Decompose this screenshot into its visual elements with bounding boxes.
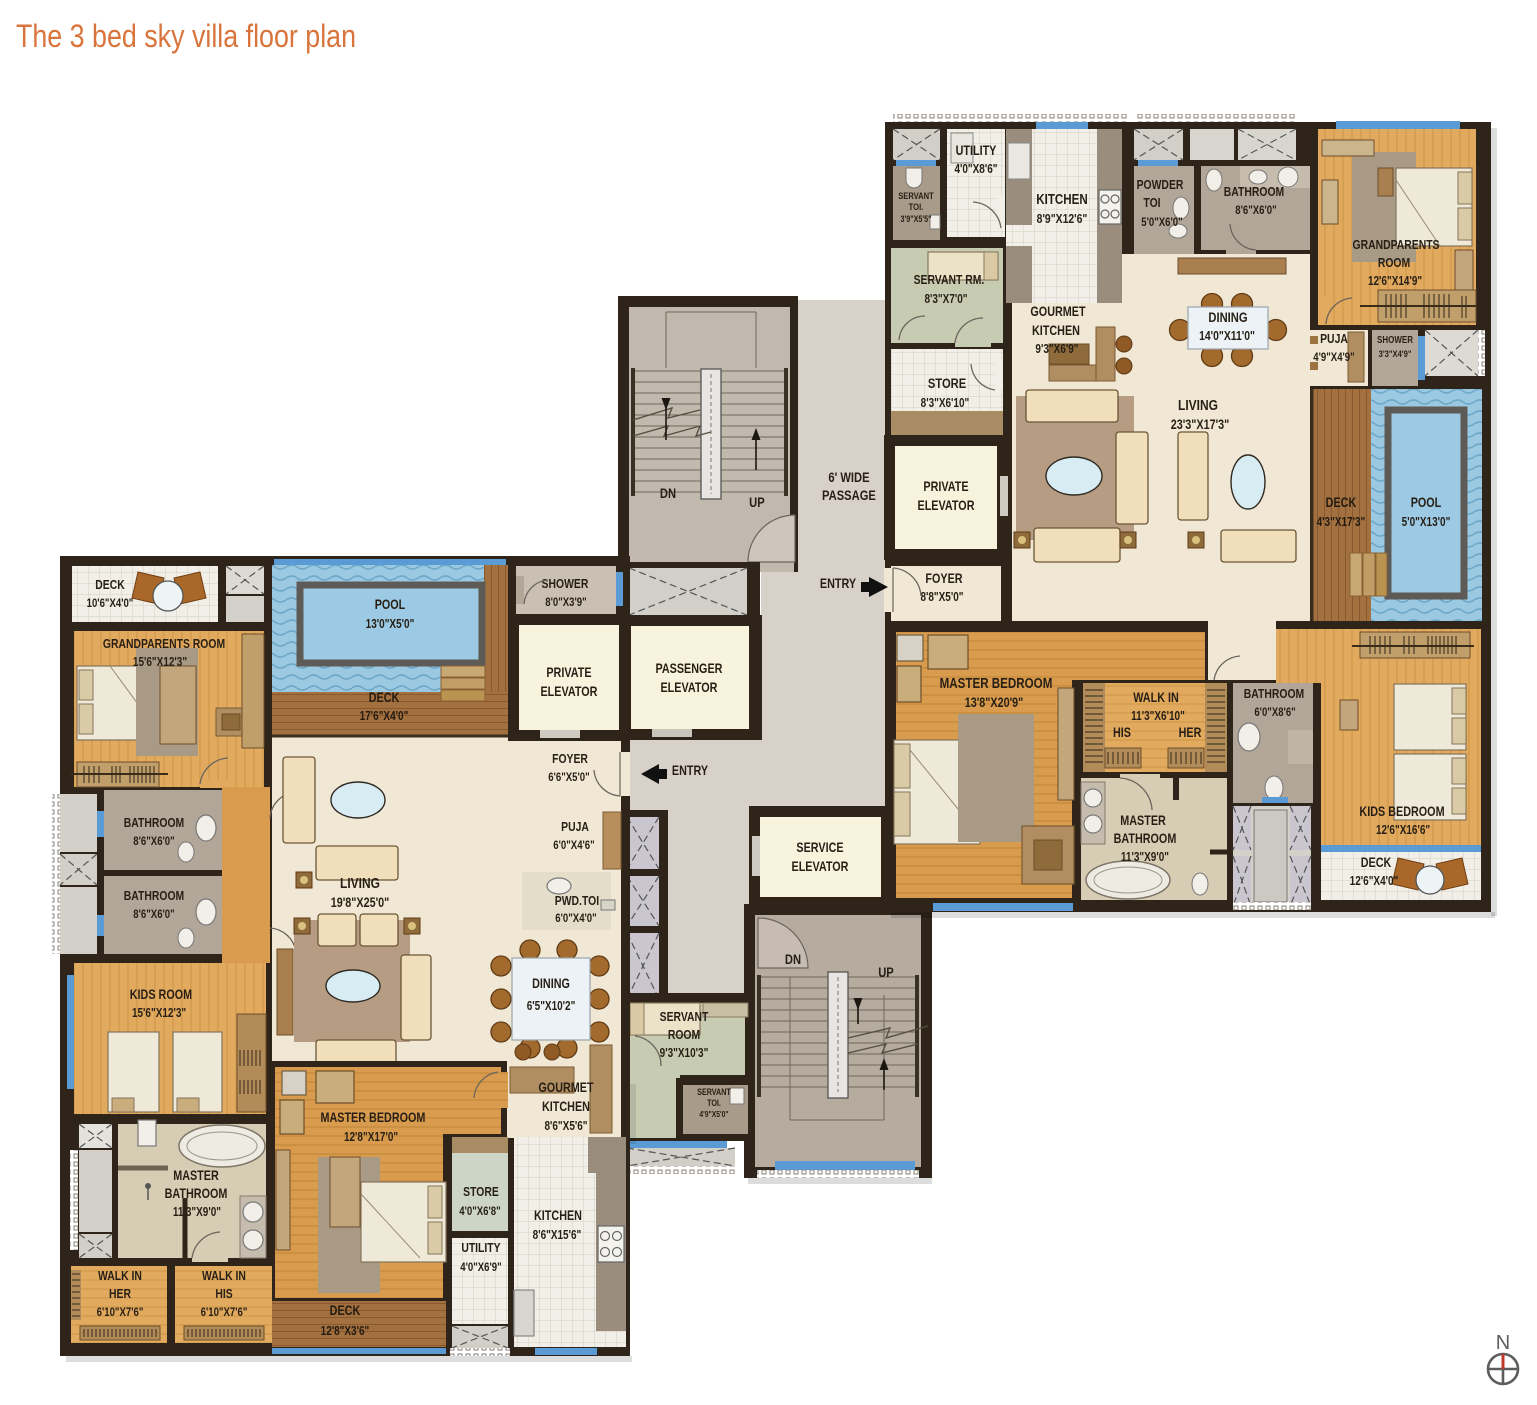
svg-text:MASTER BEDROOM: MASTER BEDROOM [940, 675, 1053, 692]
svg-text:4'9"X4'9": 4'9"X4'9" [1313, 351, 1354, 364]
svg-text:15'6"X12'3": 15'6"X12'3" [133, 656, 187, 669]
svg-text:DN: DN [660, 486, 676, 501]
svg-text:SHOWER: SHOWER [542, 577, 589, 591]
svg-text:5'0"X6'0": 5'0"X6'0" [1141, 216, 1182, 229]
svg-text:DECK: DECK [1361, 855, 1392, 870]
svg-text:STORE: STORE [928, 376, 966, 391]
svg-text:MASTER BEDROOM: MASTER BEDROOM [320, 1110, 425, 1125]
svg-text:BATHROOM: BATHROOM [124, 816, 185, 830]
svg-text:GOURMET: GOURMET [1030, 304, 1086, 319]
svg-text:19'8"X25'0": 19'8"X25'0" [331, 895, 390, 910]
svg-text:HER: HER [109, 1287, 131, 1301]
svg-text:8'3"X7'0": 8'3"X7'0" [924, 293, 967, 306]
svg-text:BATHROOM: BATHROOM [1244, 687, 1305, 701]
svg-text:8'6"X6'0": 8'6"X6'0" [133, 835, 174, 848]
svg-text:KITCHEN: KITCHEN [1032, 323, 1080, 338]
svg-text:4'0"X6'9": 4'0"X6'9" [460, 1261, 501, 1274]
svg-text:8'9"X12'6": 8'9"X12'6" [1037, 212, 1088, 226]
svg-text:6'6"X5'0": 6'6"X5'0" [548, 771, 589, 784]
svg-text:POOL: POOL [375, 597, 406, 612]
svg-text:SERVANT: SERVANT [660, 1010, 709, 1024]
svg-text:UP: UP [749, 495, 765, 510]
svg-text:LIVING: LIVING [1178, 397, 1218, 414]
svg-text:DINING: DINING [1208, 310, 1247, 325]
svg-text:ELEVATOR: ELEVATOR [792, 859, 849, 874]
svg-text:UTILITY: UTILITY [956, 143, 997, 158]
svg-text:PWD.TOI: PWD.TOI [555, 894, 599, 908]
svg-text:BATHROOM: BATHROOM [124, 889, 185, 903]
svg-text:ROOM: ROOM [668, 1028, 701, 1042]
svg-text:11'3"X6'10": 11'3"X6'10" [1131, 710, 1185, 723]
svg-text:DECK: DECK [330, 1303, 361, 1318]
svg-text:PASSENGER: PASSENGER [655, 661, 722, 676]
svg-text:ELEVATOR: ELEVATOR [660, 680, 717, 695]
svg-text:13'8"X20'9": 13'8"X20'9" [965, 695, 1024, 710]
svg-text:3'3"X4'9": 3'3"X4'9" [1379, 348, 1412, 359]
svg-text:12'6"X14'9": 12'6"X14'9" [1368, 275, 1422, 288]
svg-text:3'9"X5'5": 3'9"X5'5" [901, 214, 932, 224]
svg-text:SERVANT: SERVANT [898, 190, 934, 201]
svg-text:14'0"X11'0": 14'0"X11'0" [1199, 329, 1255, 343]
svg-text:6'10"X7'6": 6'10"X7'6" [201, 1306, 248, 1319]
svg-text:9'3"X6'9": 9'3"X6'9" [1035, 343, 1078, 356]
svg-text:6'10"X7'6": 6'10"X7'6" [97, 1306, 144, 1319]
svg-text:MASTER: MASTER [1120, 813, 1166, 828]
svg-text:6'0"X8'6": 6'0"X8'6" [1254, 706, 1295, 719]
svg-text:GOURMET: GOURMET [538, 1080, 594, 1095]
svg-text:KITCHEN: KITCHEN [1036, 191, 1088, 208]
svg-text:ENTRY: ENTRY [672, 763, 708, 778]
svg-text:23'3"X17'3": 23'3"X17'3" [1171, 417, 1230, 432]
svg-text:6'0"X4'0": 6'0"X4'0" [555, 912, 596, 925]
svg-text:HER: HER [1179, 725, 1202, 740]
svg-text:HIS: HIS [215, 1287, 232, 1301]
svg-text:11'3"X9'0": 11'3"X9'0" [1121, 851, 1169, 864]
svg-text:12'6"X16'6": 12'6"X16'6" [1376, 824, 1430, 837]
svg-text:15'6"X12'3": 15'6"X12'3" [132, 1007, 186, 1020]
svg-text:LIVING: LIVING [340, 875, 380, 892]
svg-text:N: N [1496, 1332, 1510, 1354]
svg-text:8'0"X3'9": 8'0"X3'9" [545, 596, 586, 609]
svg-text:MASTER: MASTER [173, 1168, 219, 1183]
svg-text:UP: UP [878, 965, 894, 980]
svg-text:11'3"X9'0": 11'3"X9'0" [173, 1206, 221, 1219]
svg-text:STORE: STORE [463, 1185, 499, 1199]
svg-text:POWDER: POWDER [1137, 178, 1184, 192]
svg-text:4'0"X8'6": 4'0"X8'6" [954, 163, 997, 176]
svg-text:13'0"X5'0": 13'0"X5'0" [366, 618, 415, 631]
svg-text:8'6"X15'6": 8'6"X15'6" [533, 1229, 582, 1242]
svg-text:WALK IN: WALK IN [202, 1269, 246, 1283]
svg-text:BATHROOM: BATHROOM [1224, 185, 1285, 199]
svg-text:8'8"X5'0": 8'8"X5'0" [920, 591, 963, 604]
svg-text:KIDS ROOM: KIDS ROOM [130, 987, 192, 1002]
svg-text:KITCHEN: KITCHEN [534, 1208, 582, 1223]
svg-text:KIDS BEDROOM: KIDS BEDROOM [1359, 804, 1444, 819]
svg-text:12'8"X17'0": 12'8"X17'0" [344, 1131, 398, 1144]
svg-text:10'6"X4'0": 10'6"X4'0" [87, 597, 134, 610]
svg-text:SERVANT: SERVANT [697, 1087, 731, 1097]
svg-text:WALK IN: WALK IN [98, 1269, 142, 1283]
svg-text:BATHROOM: BATHROOM [1114, 831, 1177, 846]
svg-text:SERVICE: SERVICE [796, 840, 843, 855]
svg-text:PUJA: PUJA [1320, 332, 1348, 346]
svg-text:ELEVATOR: ELEVATOR [918, 498, 975, 513]
svg-text:PUJA: PUJA [561, 820, 589, 834]
svg-text:PRIVATE: PRIVATE [923, 479, 968, 494]
svg-text:4'3"X17'3": 4'3"X17'3" [1317, 516, 1366, 529]
svg-text:8'6"X6'0": 8'6"X6'0" [133, 908, 174, 921]
svg-text:8'3"X6'10": 8'3"X6'10" [921, 397, 970, 410]
svg-text:PASSAGE: PASSAGE [822, 488, 876, 503]
svg-text:GRANDPARENTS: GRANDPARENTS [1352, 238, 1439, 252]
svg-text:WALK IN: WALK IN [1133, 690, 1179, 705]
svg-text:6' WIDE: 6' WIDE [828, 470, 869, 485]
svg-text:DECK: DECK [369, 690, 400, 705]
svg-text:ELEVATOR: ELEVATOR [540, 684, 597, 699]
svg-text:9'3"X10'3": 9'3"X10'3" [660, 1047, 709, 1060]
svg-text:BATHROOM: BATHROOM [165, 1186, 228, 1201]
svg-text:6'0"X4'6": 6'0"X4'6" [553, 839, 594, 852]
svg-text:4'0"X6'8": 4'0"X6'8" [459, 1205, 500, 1218]
svg-text:8'6"X5'6": 8'6"X5'6" [544, 1120, 587, 1133]
svg-text:12'8"X3'6": 12'8"X3'6" [321, 1325, 370, 1338]
svg-text:6'5"X10'2": 6'5"X10'2" [527, 1000, 576, 1013]
svg-text:4'9"X5'0": 4'9"X5'0" [699, 1109, 729, 1119]
svg-text:SHOWER: SHOWER [1377, 334, 1413, 345]
svg-text:TOI.: TOI. [707, 1098, 721, 1108]
svg-text:KITCHEN: KITCHEN [542, 1099, 590, 1114]
svg-text:HIS: HIS [1113, 725, 1131, 740]
svg-text:SERVANT RM.: SERVANT RM. [914, 273, 985, 287]
svg-text:GRANDPARENTS ROOM: GRANDPARENTS ROOM [103, 637, 225, 651]
svg-text:FOYER: FOYER [552, 752, 588, 766]
svg-text:ROOM: ROOM [1378, 256, 1411, 270]
svg-text:FOYER: FOYER [925, 571, 962, 586]
svg-text:ENTRY: ENTRY [820, 576, 856, 591]
svg-text:PRIVATE: PRIVATE [546, 665, 591, 680]
svg-text:UTILITY: UTILITY [461, 1241, 500, 1255]
svg-text:17'6"X4'0": 17'6"X4'0" [360, 710, 409, 723]
svg-text:DINING: DINING [532, 976, 570, 991]
svg-text:DECK: DECK [1326, 495, 1357, 510]
svg-text:DN: DN [785, 952, 801, 967]
svg-text:TOI.: TOI. [909, 201, 924, 212]
svg-text:5'0"X13'0": 5'0"X13'0" [1402, 516, 1451, 529]
svg-text:POOL: POOL [1411, 495, 1442, 510]
svg-text:The 3 bed sky villa floor plan: The 3 bed sky villa floor plan [16, 18, 356, 54]
svg-text:TOI: TOI [1143, 196, 1160, 210]
svg-text:DECK: DECK [95, 578, 125, 592]
svg-text:12'6"X4'0": 12'6"X4'0" [1350, 875, 1399, 888]
svg-text:8'6"X6'0": 8'6"X6'0" [1235, 204, 1276, 217]
